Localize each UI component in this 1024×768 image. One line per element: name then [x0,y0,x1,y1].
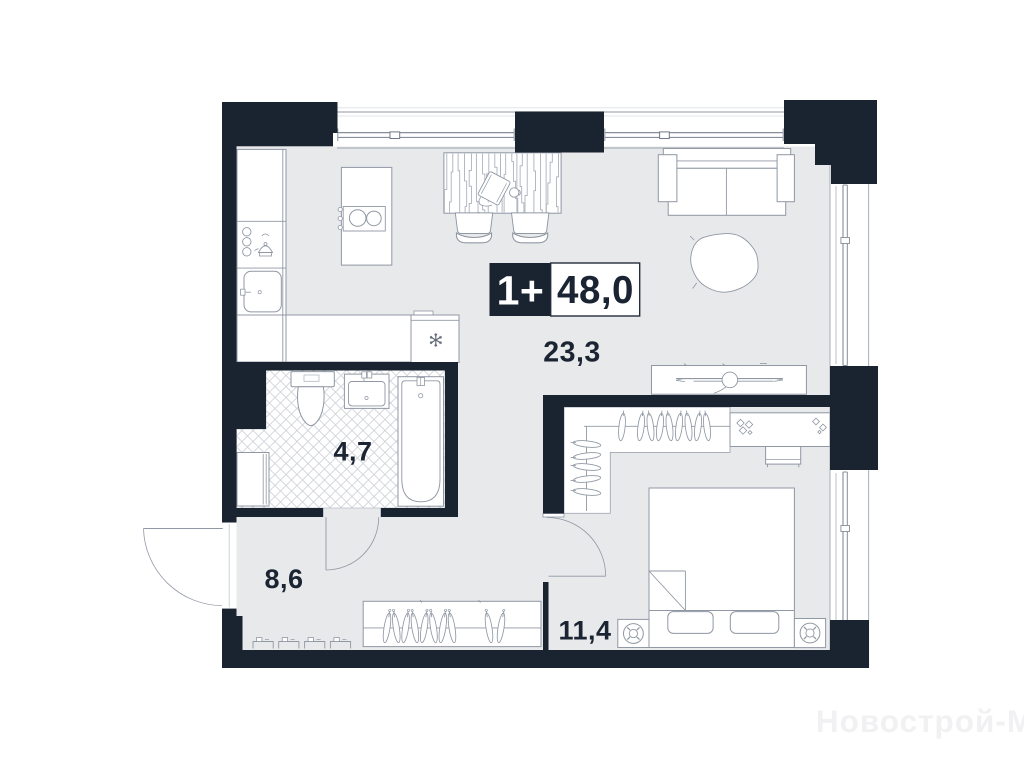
svg-text:48,0: 48,0 [557,269,634,312]
svg-text:11,4: 11,4 [558,616,611,646]
svg-text:4,7: 4,7 [333,437,372,467]
svg-text:8,6: 8,6 [264,564,303,594]
svg-text:23,3: 23,3 [543,337,600,369]
svg-text:1+: 1+ [497,268,545,314]
svg-text:Новострой-М: Новострой-М [816,703,1024,739]
